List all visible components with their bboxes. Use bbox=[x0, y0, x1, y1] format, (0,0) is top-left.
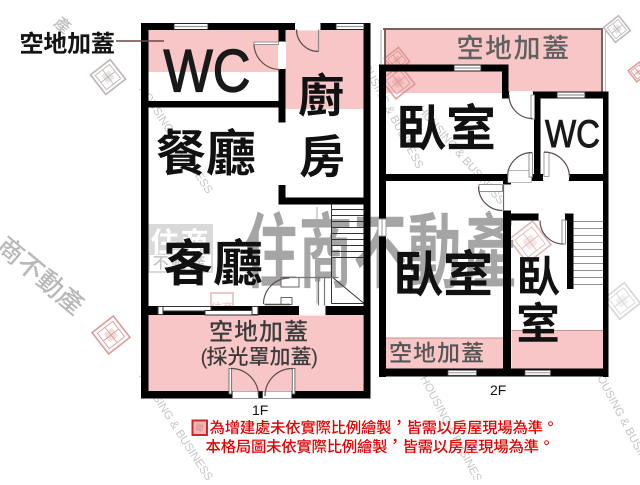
svg-text:(: ( bbox=[201, 346, 208, 369]
svg-text:2F: 2F bbox=[490, 382, 506, 398]
svg-text:1F: 1F bbox=[252, 402, 268, 418]
svg-text:): ) bbox=[311, 346, 318, 369]
svg-text:WC: WC bbox=[545, 113, 600, 156]
svg-text:WC: WC bbox=[164, 38, 251, 105]
